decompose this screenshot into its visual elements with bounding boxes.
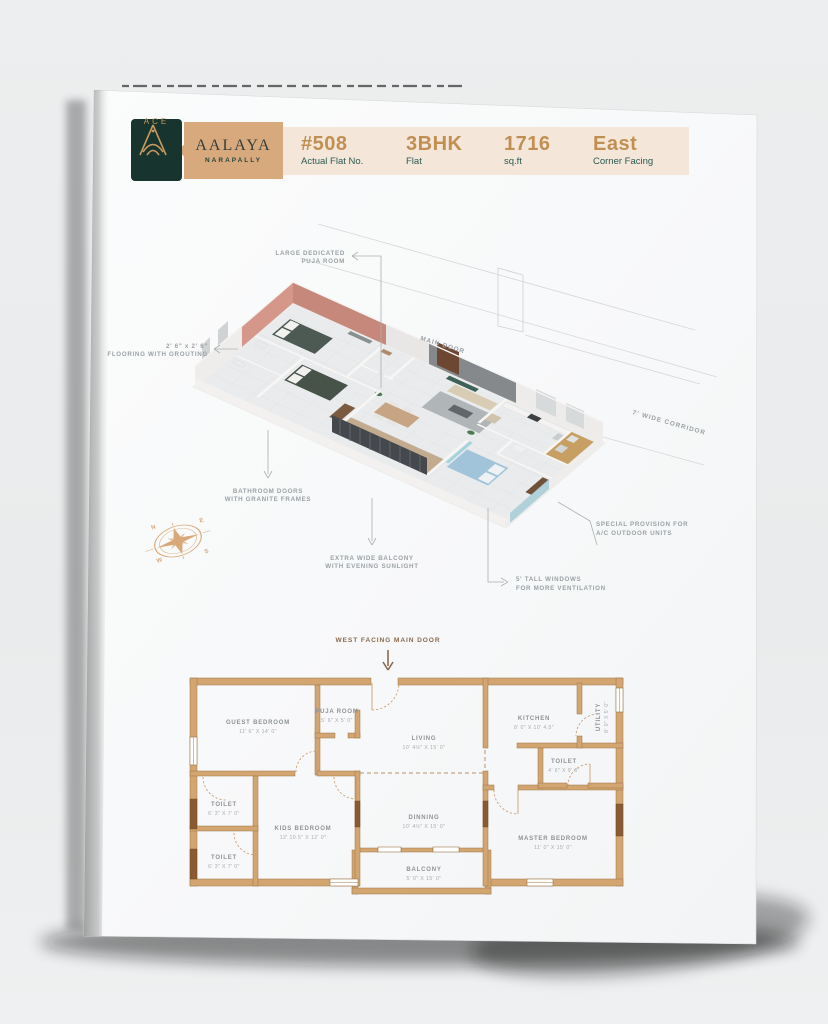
stat-area-label: sq.ft [504,156,551,167]
room-kids-bedroom: KIDS BEDROOM [275,826,332,832]
brochure-page: LARGE DEDICATED PUJA ROOM 2' 6" x 2' 6" … [0,0,828,1024]
callout-balcony-line1: EXTRA WIDE BALCONY [330,555,414,562]
room-puja: PUJA ROOM [315,709,358,715]
room-toilet-left2-dims: 6' 3" X 7' 0" [208,864,240,870]
room-balcony-dims: 5' 0" X 15' 0" [407,876,442,882]
room-kitchen-dims: 8' 0" X 10' 4.5" [514,725,554,731]
callout-puja-line2: PUJA ROOM [301,258,345,265]
stat-flat-no-label: Actual Flat No. [301,156,363,167]
stat-bhk-value: 3BHK [406,133,462,155]
room-toilet-right: TOILET [551,759,577,765]
stat-area: 1716 sq.ft [504,133,551,167]
room-toilet-right-dims: 4' 6" X 9' 0" [548,768,580,774]
callout-flooring-line1: 2' 6" x 2' 6" [166,343,208,350]
callout-ac-line2: A/C OUTDOOR UNITS [596,530,672,537]
ace-monogram-icon [131,119,175,163]
callout-ac-line1: SPECIAL PROVISION FOR [596,521,688,528]
stat-facing: East Corner Facing [593,133,653,167]
stat-area-value: 1716 [504,133,551,155]
stat-flat-no-value: #508 [301,133,363,155]
room-puja-dims: 5' 6" X 5' 0" [321,718,353,724]
west-main-door-label: WEST FACING MAIN DOOR [336,637,441,644]
room-living-dims: 10' 4½" X 15' 0" [403,744,446,751]
room-kitchen: KITCHEN [518,716,550,722]
room-guest-bedroom: GUEST BEDROOM [226,720,290,726]
stat-bhk-label: Flat [406,156,462,167]
room-toilet-left2: TOILET [211,855,237,861]
room-master-bedroom-dims: 11' 0" X 15' 0" [534,845,572,851]
project-name: AALAYA [195,137,271,155]
project-location: NARAPALLY [205,157,262,164]
flat-stats-strip: #508 Actual Flat No. 3BHK Flat 1716 sq.f… [281,127,689,175]
callout-bathroom-line1: BATHROOM DOORS [233,488,303,495]
callout-windows-line1: 5' TALL WINDOWS [516,576,581,583]
room-balcony: BALCONY [406,867,441,873]
room-utility-dims: 8' 0" X 5' 0" [604,701,610,733]
room-guest-bedroom-dims: 11' 6" X 14' 0" [239,729,277,735]
callout-puja-line1: LARGE DEDICATED [275,250,345,257]
brand-logo: ACE [131,119,182,181]
stat-bhk: 3BHK Flat [406,133,462,167]
room-dinning-dims: 10' 4½" X 15' 0" [403,823,446,830]
room-toilet-left1-dims: 6' 3" X 7' 0" [208,811,240,817]
callout-flooring-line2: FLOORING WITH GROUTING [107,351,208,358]
stat-facing-value: East [593,133,653,155]
project-brand: AALAYA NARAPALLY [184,122,283,179]
header-bar: ACE AALAYA NARAPALLY #508 Actual Flat No… [131,119,691,183]
room-toilet-left1: TOILET [211,802,237,808]
room-dinning: DINNING [409,815,440,821]
room-utility: UTILITY [596,703,602,731]
callout-windows-line2: FOR MORE VENTILATION [516,585,606,592]
room-kids-bedroom-dims: 12' 10.5" X 12' 0" [280,835,327,841]
stat-facing-label: Corner Facing [593,156,653,167]
room-living: LIVING [412,736,437,742]
stat-flat-no: #508 Actual Flat No. [301,133,363,167]
callout-balcony-line2: WITH EVENING SUNLIGHT [325,563,418,570]
room-master-bedroom: MASTER BEDROOM [518,836,588,842]
callout-bathroom-line2: WITH GRANITE FRAMES [225,496,312,503]
